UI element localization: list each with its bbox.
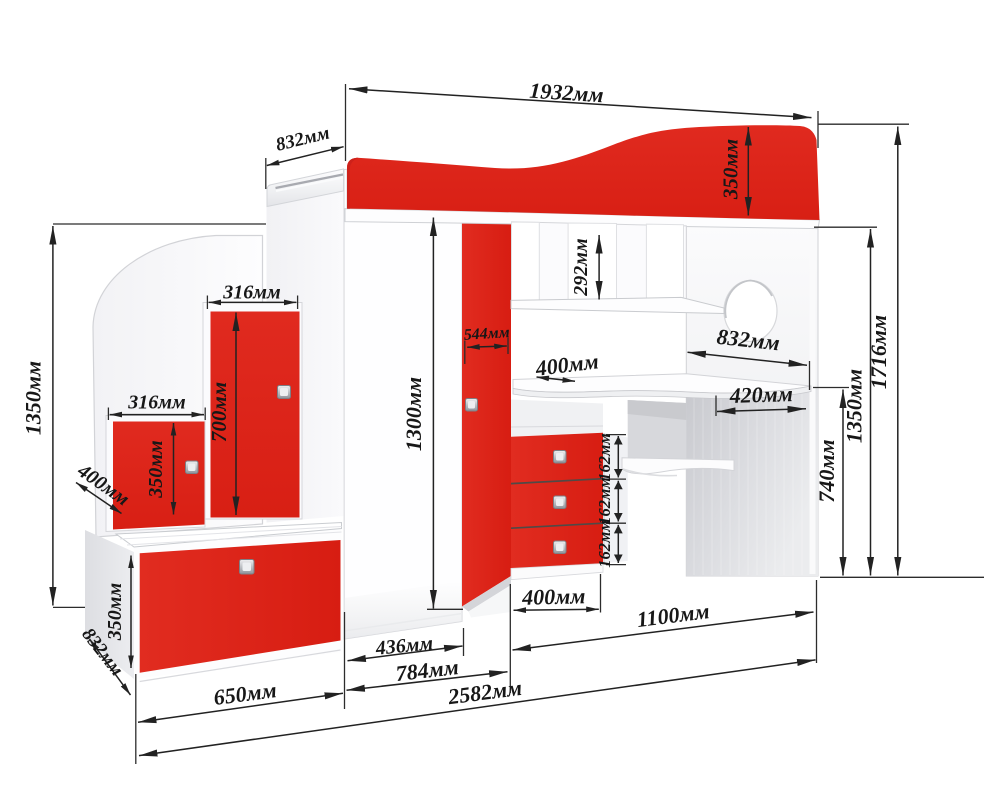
svg-text:400мм: 400мм xyxy=(521,583,586,610)
svg-text:1350мм: 1350мм xyxy=(842,369,867,443)
svg-text:350мм: 350мм xyxy=(145,440,167,499)
svg-text:162мм: 162мм xyxy=(595,477,614,524)
svg-text:162мм: 162мм xyxy=(595,520,614,567)
svg-text:420мм: 420мм xyxy=(728,381,793,408)
svg-text:700мм: 700мм xyxy=(207,382,231,442)
svg-text:350мм: 350мм xyxy=(719,139,743,200)
svg-text:1300мм: 1300мм xyxy=(401,377,426,451)
svg-text:740мм: 740мм xyxy=(814,439,839,502)
svg-text:316мм: 316мм xyxy=(127,392,186,414)
svg-text:162мм: 162мм xyxy=(595,433,614,480)
svg-text:350мм: 350мм xyxy=(104,583,126,642)
svg-text:316мм: 316мм xyxy=(222,282,281,304)
svg-text:544мм: 544мм xyxy=(463,324,510,344)
svg-text:1350мм: 1350мм xyxy=(21,361,46,435)
svg-text:292мм: 292мм xyxy=(570,238,592,297)
svg-text:1932мм: 1932мм xyxy=(529,78,605,108)
